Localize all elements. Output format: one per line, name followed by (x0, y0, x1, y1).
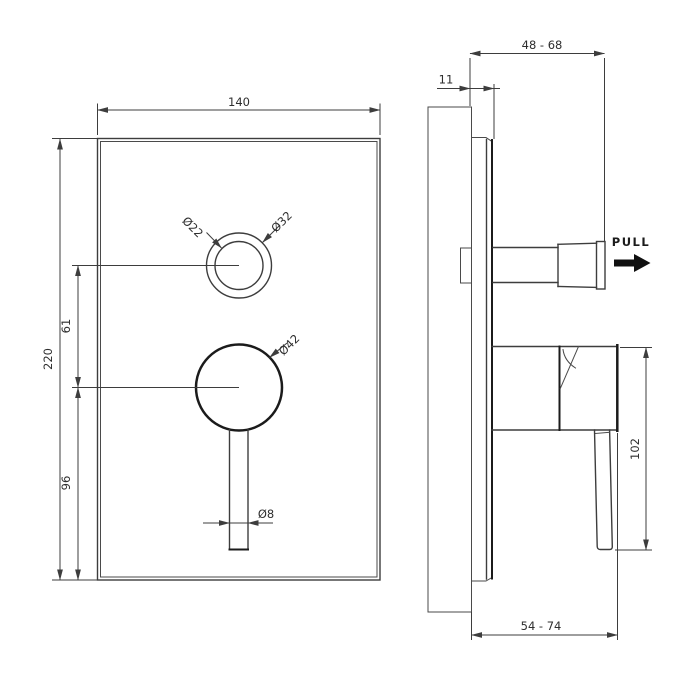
pull-label: PULL (612, 235, 650, 249)
trim-plate-side-profile (472, 138, 493, 582)
front-view: 140 220 61 96 Ø22 Ø32 Ø42 (41, 95, 380, 580)
dim-label-bottom-range: 54 - 74 (521, 619, 562, 633)
plate-front-inner-edge (101, 142, 378, 578)
dim-knob-offsets: 61 96 (59, 266, 78, 581)
wall-section-hatching (428, 107, 472, 612)
dim-label-plate-height: 220 (41, 348, 55, 370)
dim-plate-width: 140 (98, 95, 381, 135)
diverter-knob-endcap (597, 242, 606, 290)
dim-label-diverter-outer: Ø32 (268, 208, 295, 235)
side-view: PULL 48 - 68 11 (428, 38, 652, 640)
dim-lever-length: 102 (615, 348, 652, 551)
dim-handle-base: Ø42 (270, 331, 303, 358)
dim-depth-range: 48 - 68 (470, 38, 605, 241)
plate-front-outline (98, 139, 381, 581)
dim-label-bottom-offset: 96 (59, 476, 73, 491)
technical-drawing: 140 220 61 96 Ø22 Ø32 Ø42 (0, 0, 700, 700)
dim-lever-stem: Ø8 (203, 507, 274, 523)
dim-label-diverter-inner: Ø22 (179, 214, 206, 241)
drawing-svg: 140 220 61 96 Ø22 Ø32 Ø42 (0, 0, 700, 700)
valve-body-in-wall (461, 248, 472, 283)
dim-label-handle-base: Ø42 (276, 331, 303, 358)
diverter-stem-side (493, 248, 558, 283)
handle-lever-stem (230, 430, 249, 550)
dim-label-plate-width: 140 (228, 95, 250, 109)
handle-body-side (492, 345, 618, 431)
dim-plate-height: 220 (41, 139, 98, 581)
dim-diverter-outer: Ø32 (263, 208, 295, 242)
dim-label-knob-offset: 61 (59, 319, 73, 334)
handle-lever-side (595, 430, 613, 550)
pull-arrow-icon (614, 254, 651, 272)
dim-plate-projection: 11 (437, 73, 500, 140)
dim-label-lever-stem: Ø8 (258, 507, 274, 521)
dim-label-plate-projection: 11 (439, 73, 454, 87)
diverter-knob-side (558, 243, 597, 287)
dim-label-lever-length: 102 (628, 438, 642, 460)
dim-label-depth-range: 48 - 68 (522, 38, 563, 52)
